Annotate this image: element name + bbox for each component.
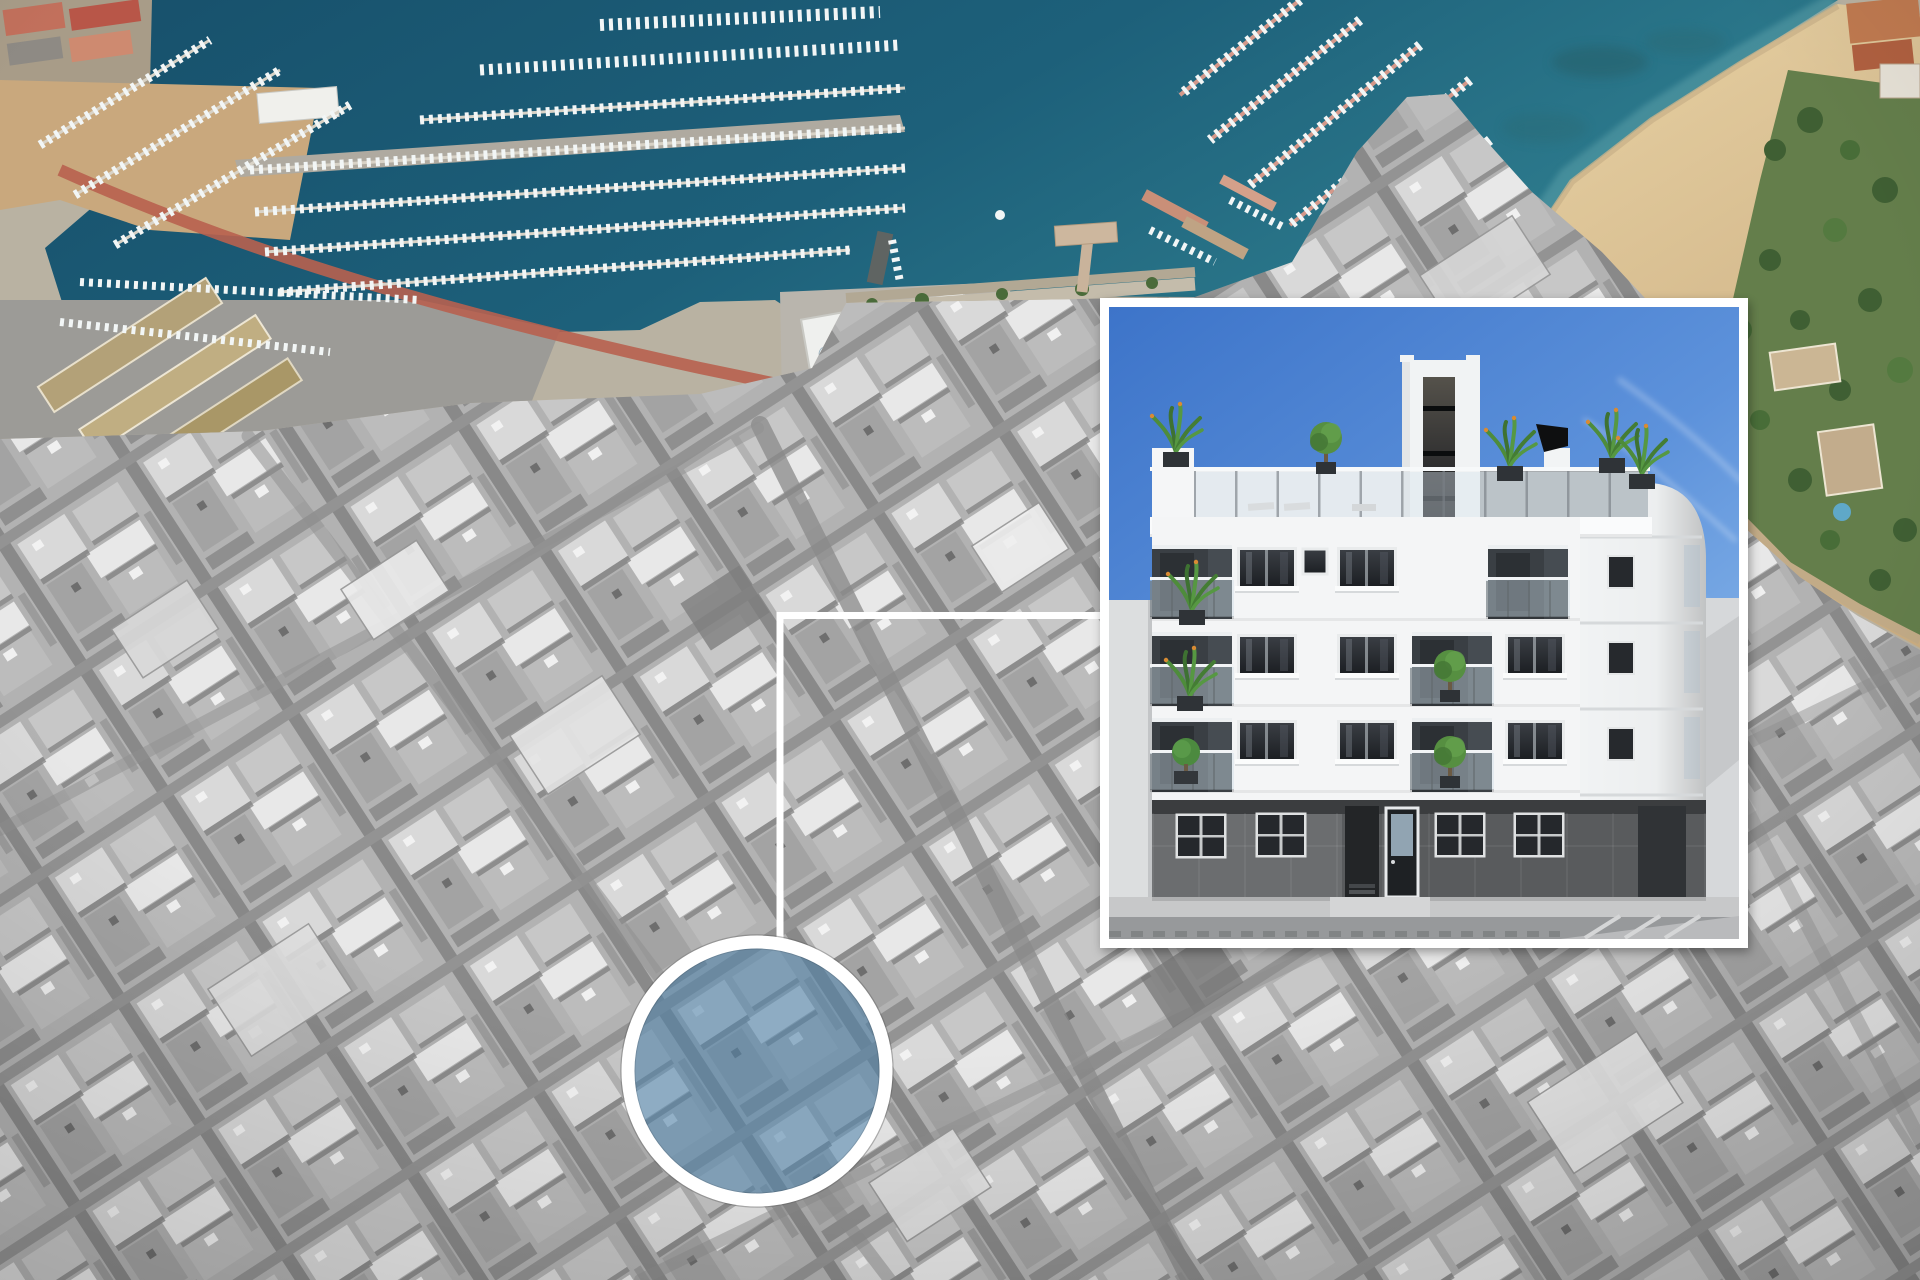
window xyxy=(1335,547,1399,593)
aerial-composite-stage xyxy=(0,0,1920,1280)
tower-window xyxy=(1608,556,1634,588)
connector-line-vertical xyxy=(777,612,784,939)
tower-window xyxy=(1608,728,1634,760)
entrance-door xyxy=(1386,808,1418,897)
ground-window xyxy=(1514,813,1565,858)
window xyxy=(1503,720,1567,766)
ground-window xyxy=(1256,813,1307,858)
small-window xyxy=(1303,549,1327,574)
terrace-glass-railing xyxy=(1152,472,1648,517)
site-marker-circle xyxy=(621,935,894,1208)
window xyxy=(1503,634,1567,680)
aerial-composite xyxy=(0,0,1920,1280)
render-inset xyxy=(1100,298,1748,948)
window xyxy=(1235,634,1299,680)
inset-content xyxy=(1109,307,1740,939)
cast-shadow xyxy=(1703,616,1739,790)
ground-floor xyxy=(1152,800,1706,897)
tower-window xyxy=(1608,642,1634,674)
ground-window xyxy=(1435,813,1486,858)
window xyxy=(1335,634,1399,680)
balcony xyxy=(1486,545,1570,619)
door-recess xyxy=(1345,806,1379,897)
ground-window xyxy=(1176,814,1227,859)
sun-lounger xyxy=(1352,504,1376,511)
connector-line-horizontal xyxy=(777,612,1107,619)
garage-recess xyxy=(1638,806,1686,897)
street xyxy=(1109,897,1739,939)
entrance-pavers xyxy=(1330,897,1430,917)
window xyxy=(1235,547,1299,593)
neighbour-wall-left xyxy=(1109,600,1152,897)
window xyxy=(1335,720,1399,766)
window xyxy=(1235,720,1299,766)
